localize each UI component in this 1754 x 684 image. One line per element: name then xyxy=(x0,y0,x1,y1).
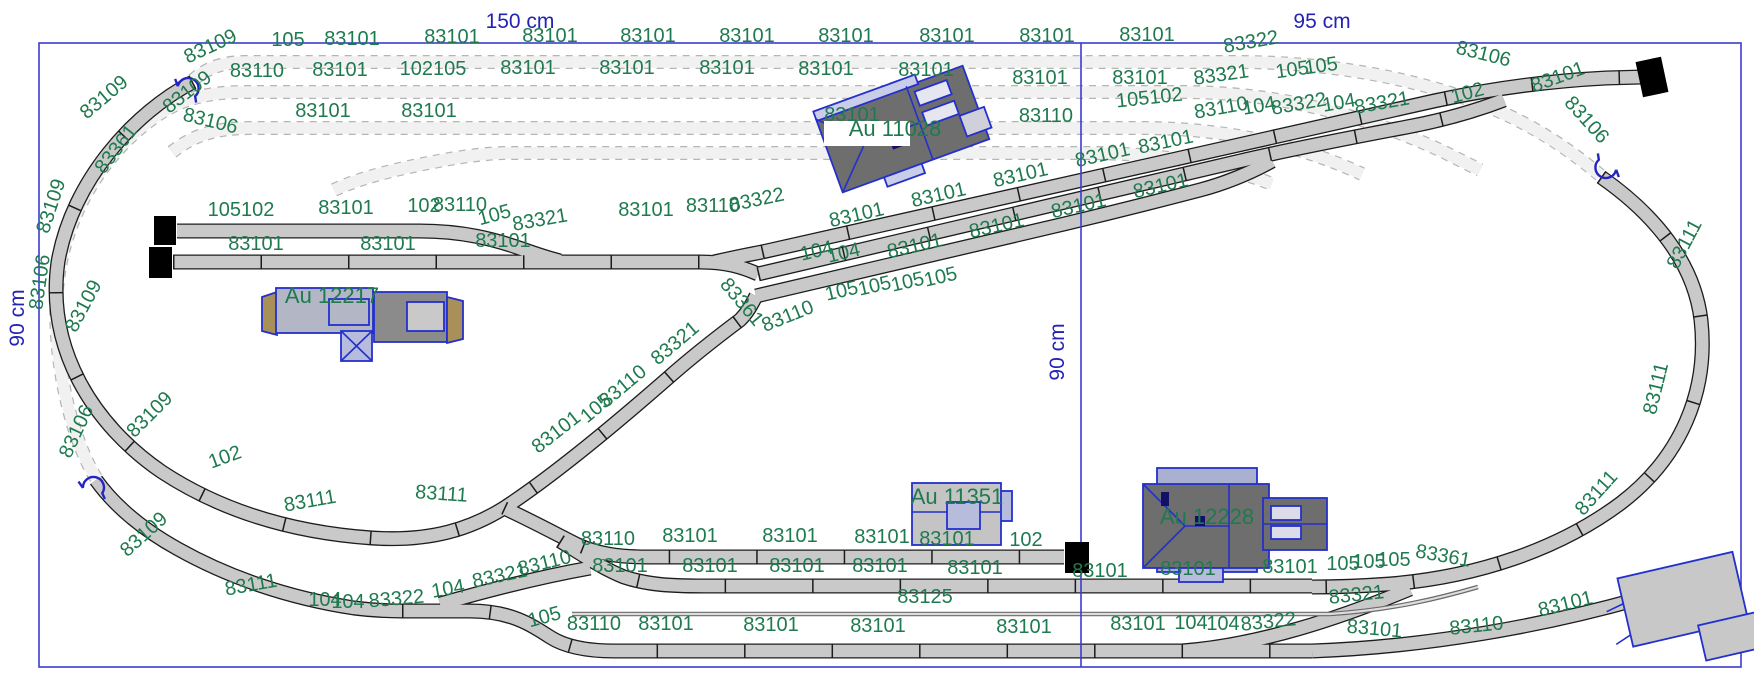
track-part-number: 102105 xyxy=(400,58,467,80)
track-part-number: 83101 xyxy=(360,233,416,255)
track-part-number: 83101 xyxy=(599,57,655,79)
track-part-number: 102 xyxy=(1009,529,1042,551)
track-part-number: 83110 xyxy=(1019,105,1073,127)
track-part-number: 83101 xyxy=(1072,560,1128,582)
track-part-number: 83101 xyxy=(854,526,910,548)
track-part-number: 83101 xyxy=(1346,616,1403,643)
track-part-number: 83110 xyxy=(759,296,817,337)
track-part-number: 83101 xyxy=(762,525,818,547)
track-part-number: 83101 xyxy=(850,615,906,637)
track-part-number: 105 xyxy=(889,268,926,297)
track-part-number: 83101 xyxy=(618,199,674,221)
track-part-number: 83111 xyxy=(414,481,468,507)
track-part-number: 83101 xyxy=(475,230,531,252)
track-part-number: 83101 xyxy=(312,59,368,81)
track-part-number: 83101 xyxy=(818,25,874,47)
track-part-number: 83322 xyxy=(727,184,786,217)
track-part-number: 105 xyxy=(271,29,304,51)
track-part-number: 104 xyxy=(331,591,364,613)
track-part-number: 83101 xyxy=(919,528,975,550)
building-label: Au 12217 xyxy=(285,283,379,308)
track-part-number: 102 xyxy=(206,441,245,473)
track-part-number: 83101 xyxy=(662,525,718,547)
building-engine-shed[interactable] xyxy=(1600,549,1754,680)
track-part-number: 83101 xyxy=(898,59,954,81)
buffer-stop xyxy=(154,216,176,245)
track-part-number: 83101 xyxy=(719,25,775,47)
dimension-label: 90 cm xyxy=(6,289,29,346)
track-part-number: 104 xyxy=(1206,613,1239,635)
track-part-number: 83101 xyxy=(682,555,738,577)
track-part-number: 83101 xyxy=(1012,67,1068,89)
dimension-label: 90 cm xyxy=(1046,323,1069,380)
track-part-number: 83101 xyxy=(1160,558,1216,580)
track-part-number: 83101 xyxy=(500,57,556,79)
track-plan-drawing: 8310910583101831018310183101831018310183… xyxy=(0,0,1754,684)
track-part-number: 83101 xyxy=(798,58,854,80)
track-part-number: 83101 xyxy=(1262,556,1318,578)
track-part-number: 83101 xyxy=(743,614,799,636)
track-part-number: 83101 xyxy=(324,28,380,50)
track-part-number: 83101 xyxy=(852,555,908,577)
track-part-number: 83125 xyxy=(897,586,953,608)
track-part-number: 83361 xyxy=(1414,540,1473,571)
track-part-number: 83109 xyxy=(76,71,133,124)
track-part-number: 105 xyxy=(1377,549,1410,571)
building-label: Au 11351 xyxy=(911,484,1004,509)
building-label: Au 11028 xyxy=(849,116,942,141)
track-part-number: 83101 xyxy=(1528,58,1588,98)
track-part-number: 83101 xyxy=(318,197,374,219)
track-part-number: 83101 xyxy=(919,25,975,47)
track-part-number: 83101 xyxy=(1110,613,1166,635)
buffer-stop xyxy=(149,247,172,278)
track-part-number: 83101 xyxy=(769,555,825,577)
track-part-number: 83101 xyxy=(401,100,457,122)
track-part-number: 83106 xyxy=(1454,37,1513,72)
buffer-stop xyxy=(1636,57,1669,98)
track-part-number: 83322 xyxy=(1222,26,1281,57)
track-part-number: 83101 xyxy=(638,613,694,635)
track-part-number: 105 xyxy=(1303,53,1339,79)
track-part-number: 83110 xyxy=(567,613,621,635)
track-part-number: 83111 xyxy=(282,486,338,517)
dimension-label: 95 cm xyxy=(1293,10,1350,33)
track-part-number: 83101 xyxy=(1119,24,1175,46)
track-part-number: 83101 xyxy=(228,233,284,255)
track-part-number: 83106 xyxy=(1560,92,1614,148)
track-part-number: 83101 xyxy=(424,26,480,48)
track-part-number: 83110 xyxy=(581,528,635,550)
track-part-number: 83101 xyxy=(947,557,1003,579)
building-label: Au 12228 xyxy=(1160,504,1254,529)
track-part-number: 83101 xyxy=(295,100,351,122)
track-part-number: 83109 xyxy=(61,276,107,335)
track-plan-canvas: 8310910583101831018310183101831018310183… xyxy=(0,0,1754,684)
track-part-number: 104 xyxy=(1174,612,1207,634)
track-part-number: 83101 xyxy=(592,555,648,577)
track-part-number: 83110 xyxy=(230,60,284,82)
track-part-number: 83111 xyxy=(1639,360,1673,416)
track-part-number: 83101 xyxy=(996,616,1052,638)
track-part-number: 83101 xyxy=(620,25,676,47)
track-part-number: 105 xyxy=(525,602,563,632)
track-part-number: 105102 xyxy=(208,199,275,221)
dimension-label: 150 cm xyxy=(486,10,555,33)
track-part-number: 83106 xyxy=(55,402,98,462)
track-part-number: 83101 xyxy=(1019,25,1075,47)
track-part-number: 83361 xyxy=(90,121,142,178)
track-part-number: 105 xyxy=(922,263,959,292)
track-part-number: 83101 xyxy=(699,57,755,79)
track-part-number: 83109 xyxy=(122,387,177,442)
